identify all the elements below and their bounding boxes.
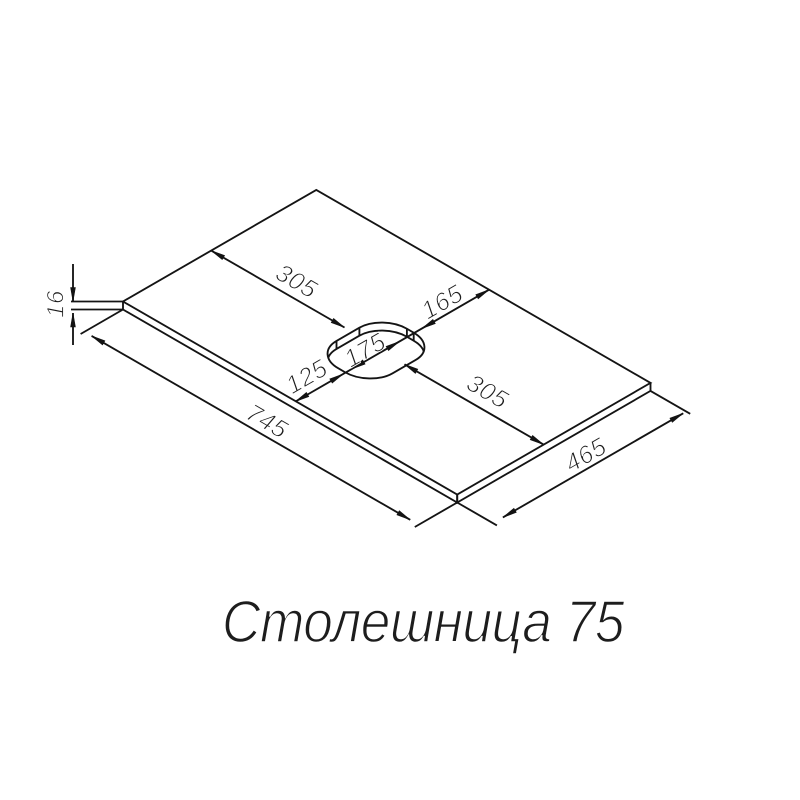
- svg-text:745: 745: [241, 399, 292, 445]
- svg-text:305: 305: [462, 369, 513, 415]
- svg-text:125: 125: [281, 354, 332, 400]
- svg-text:Столешница 75: Столешница 75: [222, 589, 625, 655]
- svg-text:165: 165: [417, 279, 468, 325]
- svg-text:305: 305: [271, 259, 322, 305]
- svg-text:16: 16: [43, 290, 70, 318]
